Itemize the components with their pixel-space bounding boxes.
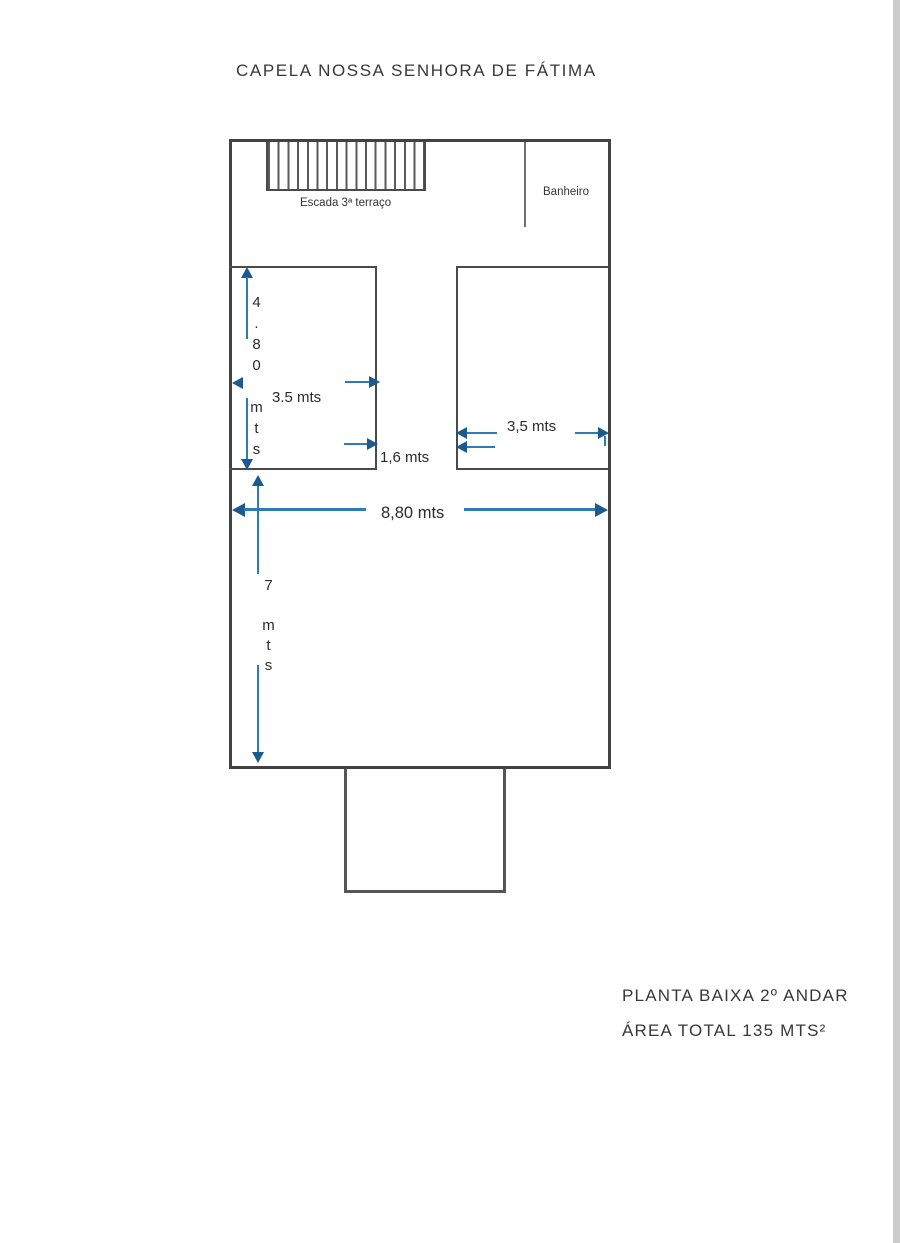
dim-7-label: 7 mts xyxy=(261,577,276,677)
dim-7-arrowhead-down-icon xyxy=(252,752,264,763)
dim-880-line-right xyxy=(464,508,600,511)
dim-7-line-bottom xyxy=(257,665,259,753)
dim-35R-arrowhead-left-icon xyxy=(456,427,467,439)
floorplan-page: CAPELA NOSSA SENHORA DE FÁTIMA Escada 3ª… xyxy=(0,0,900,1243)
bathroom-wall xyxy=(524,142,526,227)
page-edge-strip xyxy=(893,0,900,1243)
dim-35L-line xyxy=(345,381,370,383)
dim-880-label: 8,80 mts xyxy=(381,504,444,523)
bathroom-label: Banheiro xyxy=(543,186,589,198)
dim-35L-arrowhead-left-icon xyxy=(232,377,243,389)
dim-7-line-top xyxy=(257,486,259,574)
right-room-wall xyxy=(456,266,608,470)
page-title: CAPELA NOSSA SENHORA DE FÁTIMA xyxy=(236,61,597,81)
dim-16-label: 1,6 mts xyxy=(380,449,429,466)
dim-16-line-left xyxy=(344,443,368,445)
dim-16-line-right xyxy=(467,446,495,448)
dim-35L-label: 3.5 mts xyxy=(272,389,321,406)
dim-7-arrowhead-up-icon xyxy=(252,475,264,486)
dim-880-arrowhead-right-icon xyxy=(595,503,608,517)
dim-35R-label: 3,5 mts xyxy=(507,418,556,435)
plan-name-label: PLANTA BAIXA 2º ANDAR xyxy=(622,986,849,1006)
area-total-label: ÁREA TOTAL 135 MTS² xyxy=(622,1021,827,1041)
dim-35L-arrowhead-right-icon xyxy=(369,376,380,388)
stairs-label: Escada 3ª terraço xyxy=(300,197,391,209)
dim-35R-line-left xyxy=(467,432,497,434)
entry-porch-wall xyxy=(344,769,506,893)
dim-480-label: 4.80 mts xyxy=(249,294,264,462)
dim-16-arrowhead-right-icon xyxy=(367,438,378,450)
stairs-hatch xyxy=(266,142,426,191)
dim-35R-extension-tick xyxy=(604,436,606,446)
dim-16-arrowhead-left-icon xyxy=(456,441,467,453)
dim-880-line-left xyxy=(244,508,366,511)
